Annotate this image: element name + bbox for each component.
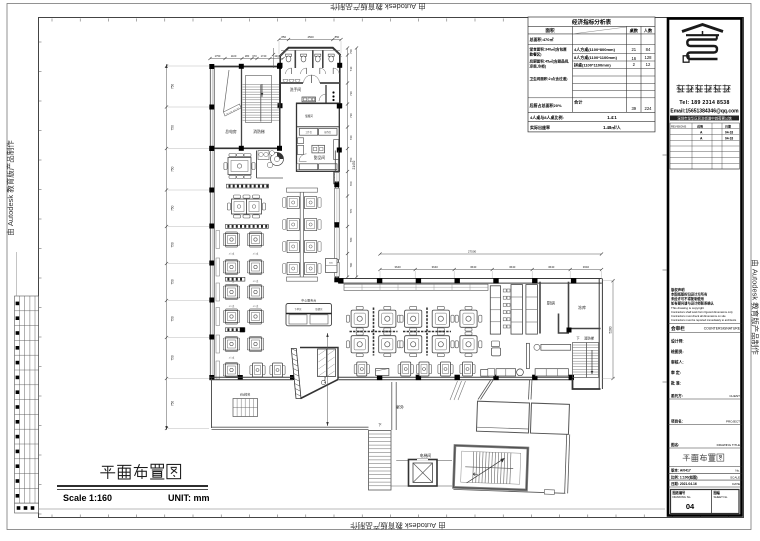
svg-text:3640: 3640 xyxy=(394,265,401,269)
svg-text:商铺楼梯: 商铺楼梯 xyxy=(240,393,251,397)
svg-text:由 Autodesk 教育版产品制作: 由 Autodesk 教育版产品制作 xyxy=(5,140,15,236)
svg-text:SCALE: SCALE xyxy=(730,475,740,479)
svg-text:670: 670 xyxy=(252,54,257,58)
svg-text:3640: 3640 xyxy=(548,265,555,269)
svg-text:750: 750 xyxy=(171,279,175,285)
svg-text:1740: 1740 xyxy=(261,54,267,58)
svg-text:4762: 4762 xyxy=(323,376,327,383)
svg-text:770: 770 xyxy=(349,208,353,213)
svg-text:室外: 室外 xyxy=(396,404,405,411)
svg-text:1.48㎡/人: 1.48㎡/人 xyxy=(603,124,622,130)
svg-text:12: 12 xyxy=(646,62,651,67)
svg-text:CLIENT: CLIENT xyxy=(729,394,740,398)
svg-text:由 Autodesk 教育版产品制作: 由 Autodesk 教育版产品制作 xyxy=(751,259,760,355)
svg-text:洗手间: 洗手间 xyxy=(290,87,302,92)
svg-text:1100: 1100 xyxy=(231,54,237,58)
svg-text:4500: 4500 xyxy=(307,35,314,39)
svg-text:No.: No. xyxy=(735,469,740,473)
svg-text:卫生间面积:2㎡(含过道): 卫生间面积:2㎡(含过道) xyxy=(530,76,569,81)
svg-text:04-18: 04-18 xyxy=(725,136,733,140)
svg-text:750: 750 xyxy=(171,205,175,211)
svg-text:Contractors must check all dim: Contractors must check all dimensions on… xyxy=(671,314,726,318)
svg-text:堂食面积:340㎡(含包厘: 堂食面积:340㎡(含包厘 xyxy=(530,47,568,52)
svg-text:后厨面积:45㎡(含甜品间,: 后厨面积:45㎡(含甜品间, xyxy=(530,59,570,64)
svg-text:720: 720 xyxy=(349,91,353,96)
svg-text:桌数: 桌数 xyxy=(629,27,639,34)
svg-text:730: 730 xyxy=(349,113,353,118)
svg-text:16: 16 xyxy=(631,56,636,61)
svg-text:DRAWING TITLE: DRAWING TITLE xyxy=(717,443,740,447)
svg-text:Tel: 189 2314 8538: Tel: 189 2314 8538 xyxy=(679,100,729,106)
svg-text:消防梯: 消防梯 xyxy=(253,129,265,134)
svg-text:750: 750 xyxy=(171,166,175,172)
svg-text:224: 224 xyxy=(645,106,653,111)
svg-text:750: 750 xyxy=(171,84,175,90)
svg-text:4人桌与8人桌比例:: 4人桌与8人桌比例: xyxy=(530,114,564,120)
svg-text:DRAWING No.: DRAWING No. xyxy=(673,495,692,499)
svg-text:84: 84 xyxy=(646,47,651,52)
svg-text:比例: 1:100(如图): 比例: 1:100(如图) xyxy=(671,474,698,479)
svg-text:项目名:: 项目名: xyxy=(671,419,683,424)
svg-text:储藏间: 储藏间 xyxy=(305,114,313,118)
svg-text:04-18: 04-18 xyxy=(725,131,733,135)
svg-text:实际出座率: 实际出座率 xyxy=(530,124,550,130)
svg-text:电梯间: 电梯间 xyxy=(420,453,432,458)
svg-text:说明: 说明 xyxy=(697,124,703,129)
svg-text:面积: 面积 xyxy=(545,27,555,34)
svg-text:DATE: DATE xyxy=(732,482,740,486)
svg-text:5280: 5280 xyxy=(609,326,613,333)
svg-text:拼桌(1100*1100mm): 拼桌(1100*1100mm) xyxy=(574,62,611,68)
svg-text:420: 420 xyxy=(274,54,279,58)
svg-text:消防梯: 消防梯 xyxy=(584,336,595,341)
svg-text:总面积:470㎡: 总面积:470㎡ xyxy=(530,36,554,42)
svg-text:下单区: 下单区 xyxy=(294,307,302,311)
svg-text:3640: 3640 xyxy=(432,265,439,269)
svg-text:审核人:: 审核人: xyxy=(671,360,684,365)
svg-text:850: 850 xyxy=(335,35,340,39)
svg-text:750: 750 xyxy=(171,316,175,322)
svg-text:750: 750 xyxy=(171,355,175,361)
svg-text:Contractors shall work form fi: Contractors shall work form figured dime… xyxy=(671,310,733,314)
svg-text:4人方桌(1100*800mm): 4人方桌(1100*800mm) xyxy=(574,46,616,52)
svg-text:批 准:: 批 准: xyxy=(671,381,681,386)
svg-text:REVISIONS: REVISIONS xyxy=(671,125,686,129)
svg-text:Scale 1:160: Scale 1:160 xyxy=(63,493,112,503)
svg-text:3640: 3640 xyxy=(470,265,477,269)
svg-text:深圳市龙华区民治街道中城苺蓉公馆: 深圳市龙华区民治街道中城苺蓉公馆 xyxy=(677,116,732,121)
svg-text:人数: 人数 xyxy=(643,27,653,34)
svg-text:绘图员:: 绘图员: xyxy=(671,349,684,354)
svg-text:委托方:: 委托方: xyxy=(671,393,683,398)
svg-text:后厨占总面积20%: 后厨占总面积20% xyxy=(530,102,562,108)
svg-text:750: 750 xyxy=(171,401,175,407)
svg-text:750: 750 xyxy=(171,242,175,248)
svg-text:取餐区: 取餐区 xyxy=(315,307,323,311)
svg-text:27500: 27500 xyxy=(468,250,477,254)
svg-text:280: 280 xyxy=(245,54,250,58)
svg-text:3640: 3640 xyxy=(583,265,590,269)
svg-text:790: 790 xyxy=(349,262,353,267)
svg-text:SHEET No.: SHEET No. xyxy=(714,495,729,499)
svg-text:由 Autodesk 教育版产品制作: 由 Autodesk 教育版产品制作 xyxy=(350,521,446,531)
svg-text:经济指标分析表: 经济指标分析表 xyxy=(572,18,612,26)
svg-text:740: 740 xyxy=(349,135,353,140)
svg-text:设计师:: 设计师: xyxy=(671,339,684,344)
svg-text:散餐区): 散餐区) xyxy=(530,52,543,57)
svg-text:日期: 日期 xyxy=(725,124,731,129)
svg-text:04: 04 xyxy=(686,502,695,511)
svg-text:合计: 合计 xyxy=(574,99,583,106)
svg-text:21452: 21452 xyxy=(352,160,356,169)
svg-text:未经许可不得复制使用: 未经许可不得复制使用 xyxy=(670,296,704,301)
svg-text:PROJECT: PROJECT xyxy=(726,420,740,424)
svg-text:Contractors must be reported i: Contractors must be reported immediately… xyxy=(671,318,737,322)
svg-text:8人方桌(1100*1100mm): 8人方桌(1100*1100mm) xyxy=(574,54,618,60)
svg-text:780: 780 xyxy=(349,237,353,242)
svg-text:COUNTERSIGNATURE: COUNTERSIGNATURE xyxy=(704,327,741,331)
svg-text:21: 21 xyxy=(631,47,636,52)
svg-text:如有疑问请与设计师联系确认: 如有疑问请与设计师联系确认 xyxy=(671,301,715,306)
svg-text:UNIT: mm: UNIT: mm xyxy=(168,493,210,503)
svg-text:700: 700 xyxy=(349,49,353,54)
svg-text:由 Autodesk 教育版产品制作: 由 Autodesk 教育版产品制作 xyxy=(330,2,426,12)
svg-text:日期: 2021.04.16: 日期: 2021.04.16 xyxy=(671,481,697,486)
svg-text:本图纸版权归设计方所有: 本图纸版权归设计方所有 xyxy=(670,292,708,297)
svg-text:750: 750 xyxy=(171,125,175,131)
svg-text:1750: 1750 xyxy=(215,54,221,58)
svg-text:冻库: 冻库 xyxy=(578,304,586,310)
svg-text:Email:15651384346@qq.com: Email:15651384346@qq.com xyxy=(670,109,739,115)
svg-text:39: 39 xyxy=(631,106,636,111)
svg-text:甜品间: 甜品间 xyxy=(314,155,326,160)
svg-text:760: 760 xyxy=(349,181,353,186)
svg-text:会审栏: 会审栏 xyxy=(670,325,685,332)
svg-text:710: 710 xyxy=(349,66,353,71)
svg-text:凉菜,冷柜): 凉菜,冷柜) xyxy=(530,64,547,69)
svg-text:版权声明: 版权声明 xyxy=(671,287,685,292)
svg-text:版本: A/0417: 版本: A/0417 xyxy=(671,468,691,473)
svg-text:总电房: 总电房 xyxy=(225,129,237,134)
svg-text:3640: 3640 xyxy=(509,265,516,269)
svg-text:1.4:1: 1.4:1 xyxy=(607,115,617,120)
svg-text:中心服务台: 中心服务台 xyxy=(301,298,316,303)
svg-text:图名:: 图名: xyxy=(671,442,679,447)
svg-text:850: 850 xyxy=(281,35,286,39)
svg-text:128: 128 xyxy=(645,55,653,60)
svg-text:This drawing is copyright: This drawing is copyright xyxy=(671,306,704,310)
svg-text:审 定:: 审 定: xyxy=(671,370,681,375)
svg-text:厨房: 厨房 xyxy=(547,300,555,307)
